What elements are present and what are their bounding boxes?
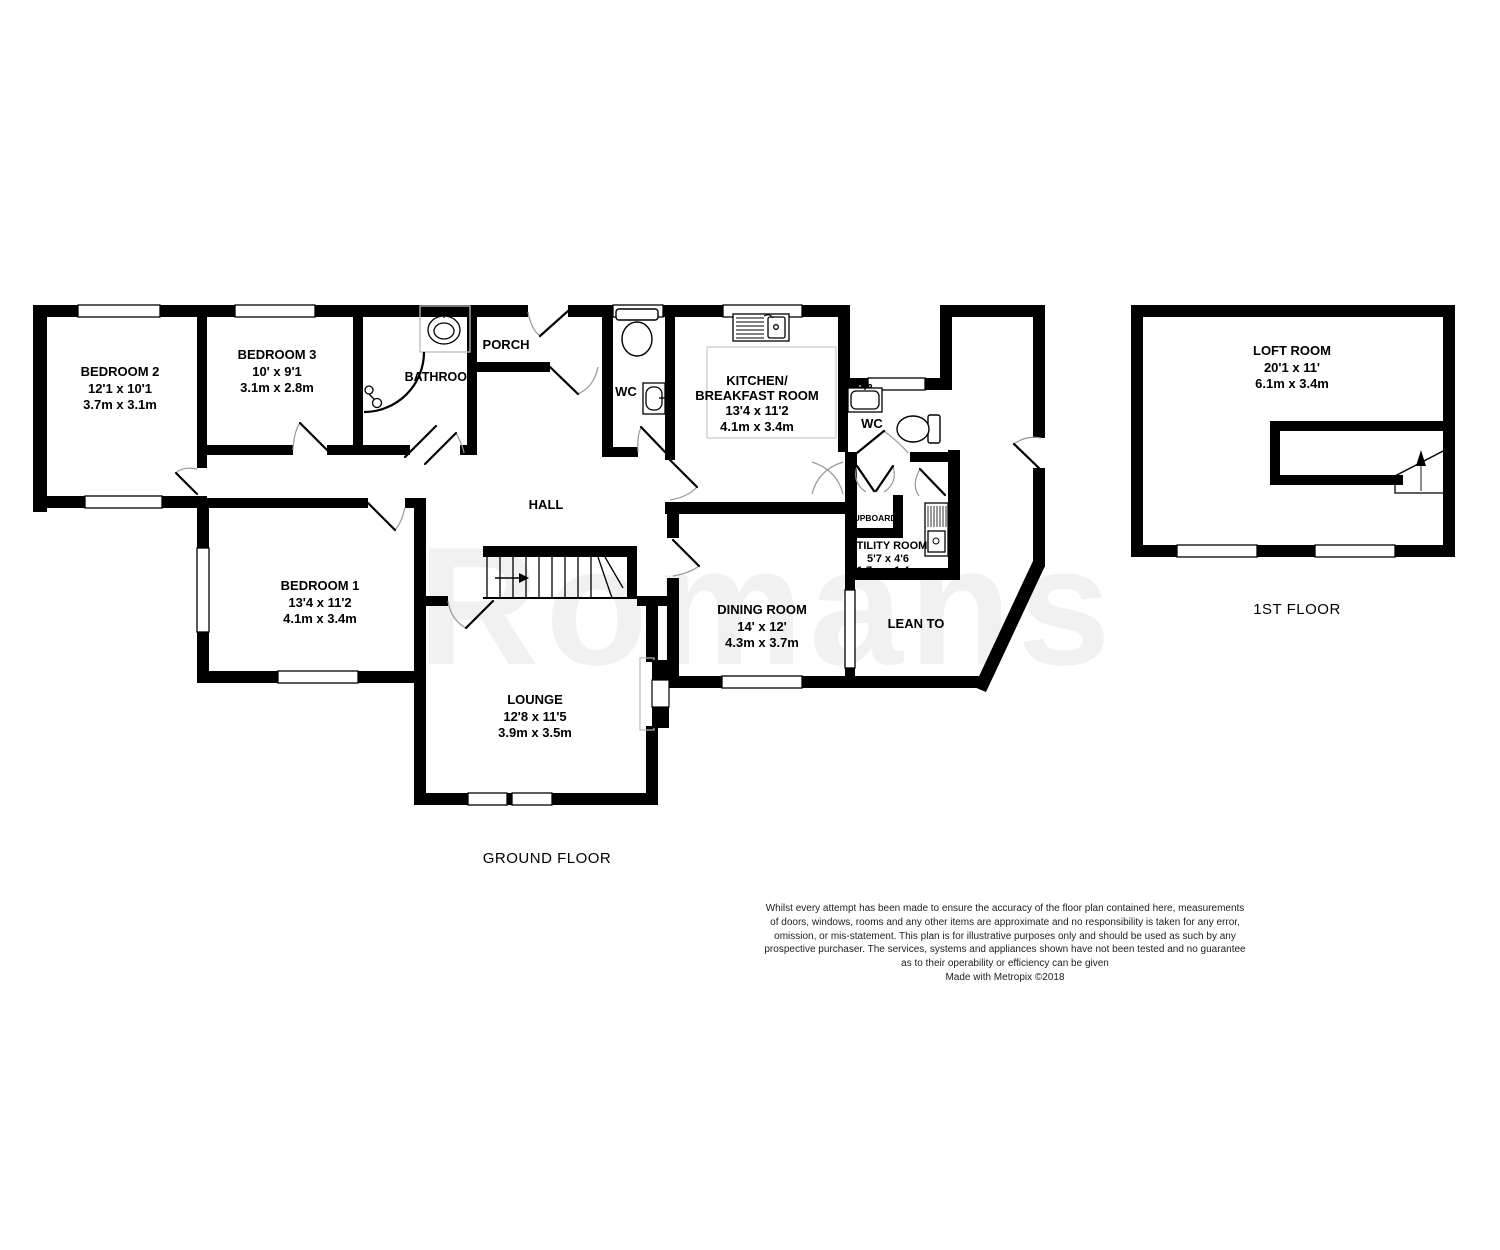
- room-size-metric: 6.1m x 3.4m: [1253, 376, 1331, 393]
- door-swing: [578, 367, 598, 394]
- window: [468, 793, 507, 805]
- room-name: DINING ROOM: [717, 602, 807, 619]
- loft-staircase-up-arrow-icon: [1416, 450, 1426, 491]
- disclaimer-line: omission, or mis-statement. This plan is…: [685, 930, 1325, 944]
- door-leaf: [876, 466, 893, 491]
- door-swing: [1014, 437, 1041, 444]
- room-label-cupboard: CUPBOARD: [847, 514, 896, 523]
- window: [512, 793, 552, 805]
- door-swing: [395, 507, 405, 530]
- room-label-porch: PORCH: [483, 337, 530, 354]
- ground-floor-caption: GROUND FLOOR: [483, 850, 612, 867]
- window: [197, 548, 209, 632]
- room-label-dining: DINING ROOM 14' x 12' 4.3m x 3.7m: [717, 602, 807, 652]
- room-label-bedroom-1: BEDROOM 1 13'4 x 11'2 4.1m x 3.4m: [281, 578, 360, 628]
- room-size-imperial: 20'1 x 11': [1253, 360, 1331, 377]
- door-swing: [638, 428, 641, 452]
- room-size-imperial: 13'4 x 11'2: [281, 595, 360, 612]
- window: [1177, 545, 1257, 557]
- door-swing: [448, 601, 466, 628]
- room-label-wc-front: WC: [615, 384, 637, 401]
- window: [278, 671, 358, 683]
- room-label-utility: UTILITY ROOM 5'7 x 4'6 1.7m x 1.4m: [849, 540, 928, 578]
- room-label-loft: LOFT ROOM 20'1 x 11' 6.1m x 3.4m: [1253, 343, 1331, 393]
- room-size-imperial: 5'7 x 4'6: [849, 553, 928, 566]
- door-leaf: [368, 503, 395, 530]
- room-name: UTILITY ROOM: [849, 540, 928, 553]
- window: [235, 305, 315, 317]
- disclaimer-line: prospective purchaser. The services, sys…: [685, 943, 1325, 957]
- fireplace-icon: [640, 658, 669, 730]
- window: [78, 305, 160, 317]
- room-label-bedroom-2: BEDROOM 2 12'1 x 10'1 3.7m x 3.1m: [81, 364, 160, 414]
- disclaimer-line: of doors, windows, rooms and any other i…: [685, 916, 1325, 930]
- room-name: LOFT ROOM: [1253, 343, 1331, 360]
- lean-to-angled-wall: [974, 561, 1045, 692]
- door-swing: [812, 462, 843, 494]
- door-leaf: [670, 460, 697, 487]
- loft-staircase: [1393, 449, 1447, 493]
- door-leaf: [857, 466, 874, 491]
- first-floor-caption: 1ST FLOOR: [1253, 601, 1341, 618]
- disclaimer-line: as to their operability or efficiency ca…: [685, 957, 1325, 971]
- window: [85, 496, 162, 508]
- room-size-metric: 4.1m x 3.4m: [281, 611, 360, 628]
- room-size-imperial: 12'1 x 10'1: [81, 381, 160, 398]
- disclaimer-line: Whilst every attempt has been made to en…: [685, 902, 1325, 916]
- room-label-kitchen: KITCHEN/ BREAKFAST ROOM 13'4 x 11'2 4.1m…: [695, 373, 819, 434]
- window: [845, 590, 855, 668]
- room-size-metric: 1.7m x 1.4m: [849, 565, 928, 578]
- room-name: BEDROOM 2: [81, 364, 160, 381]
- room-label-wc-rear: WC: [861, 416, 883, 433]
- room-size-imperial: 10' x 9'1: [238, 364, 317, 381]
- room-label-lean-to: LEAN TO: [888, 616, 945, 633]
- door-leaf: [673, 540, 699, 566]
- winder-step: [605, 557, 623, 588]
- room-label-hall: HALL: [529, 497, 564, 514]
- room-label-bathroom: BATHROOM: [405, 369, 478, 386]
- room-size-metric: 4.3m x 3.7m: [717, 635, 807, 652]
- metropix-credit: Made with Metropix ©2018: [685, 971, 1325, 985]
- disclaimer: Whilst every attempt has been made to en…: [685, 902, 1325, 985]
- room-size-metric: 3.9m x 3.5m: [498, 725, 572, 742]
- door-leaf: [550, 367, 578, 394]
- door-leaf: [176, 473, 197, 494]
- washing-machine-icon: [925, 503, 948, 556]
- toilet-icon: [616, 309, 658, 356]
- door-leaf: [920, 469, 945, 495]
- staircase: [483, 557, 637, 598]
- room-name: BEDROOM 3: [238, 347, 317, 364]
- window: [722, 676, 802, 688]
- door-leaf: [466, 601, 493, 628]
- front-door-leaf: [540, 311, 568, 336]
- door-swing: [528, 312, 540, 336]
- room-name: LOUNGE: [498, 692, 572, 709]
- room-size-metric: 3.1m x 2.8m: [238, 380, 317, 397]
- room-label-bedroom-3: BEDROOM 3 10' x 9'1 3.1m x 2.8m: [238, 347, 317, 397]
- door-swing: [670, 487, 697, 500]
- door-leaf: [641, 427, 665, 452]
- hand-basin-icon: [848, 383, 882, 412]
- sliding-door-leaf: [425, 433, 456, 464]
- room-size-imperial: 13'4 x 11'2: [695, 403, 819, 418]
- door-swing: [915, 469, 920, 496]
- winder-step: [598, 557, 612, 598]
- door-swing: [812, 462, 843, 494]
- room-name: BREAKFAST ROOM: [695, 388, 819, 403]
- room-size-metric: 4.1m x 3.4m: [695, 419, 819, 434]
- door-leaf: [1014, 444, 1041, 470]
- hand-basin-icon: [643, 383, 666, 414]
- door-leaf: [852, 431, 884, 457]
- room-size-imperial: 12'8 x 11'5: [498, 709, 572, 726]
- sliding-door-leaf: [405, 426, 436, 457]
- door-swing: [176, 468, 197, 473]
- door-leaf: [300, 423, 327, 450]
- room-label-lounge: LOUNGE 12'8 x 11'5 3.9m x 3.5m: [498, 692, 572, 742]
- room-size-metric: 3.7m x 3.1m: [81, 397, 160, 414]
- door-swing: [673, 566, 699, 576]
- room-size-imperial: 14' x 12': [717, 619, 807, 636]
- room-name: KITCHEN/: [695, 373, 819, 388]
- floorplan-page: Romans: [0, 0, 1500, 1250]
- room-name: BEDROOM 1: [281, 578, 360, 595]
- kitchen-sink-icon: [733, 314, 789, 341]
- door-swing: [293, 423, 300, 450]
- window: [1315, 545, 1395, 557]
- toilet-icon: [897, 415, 940, 443]
